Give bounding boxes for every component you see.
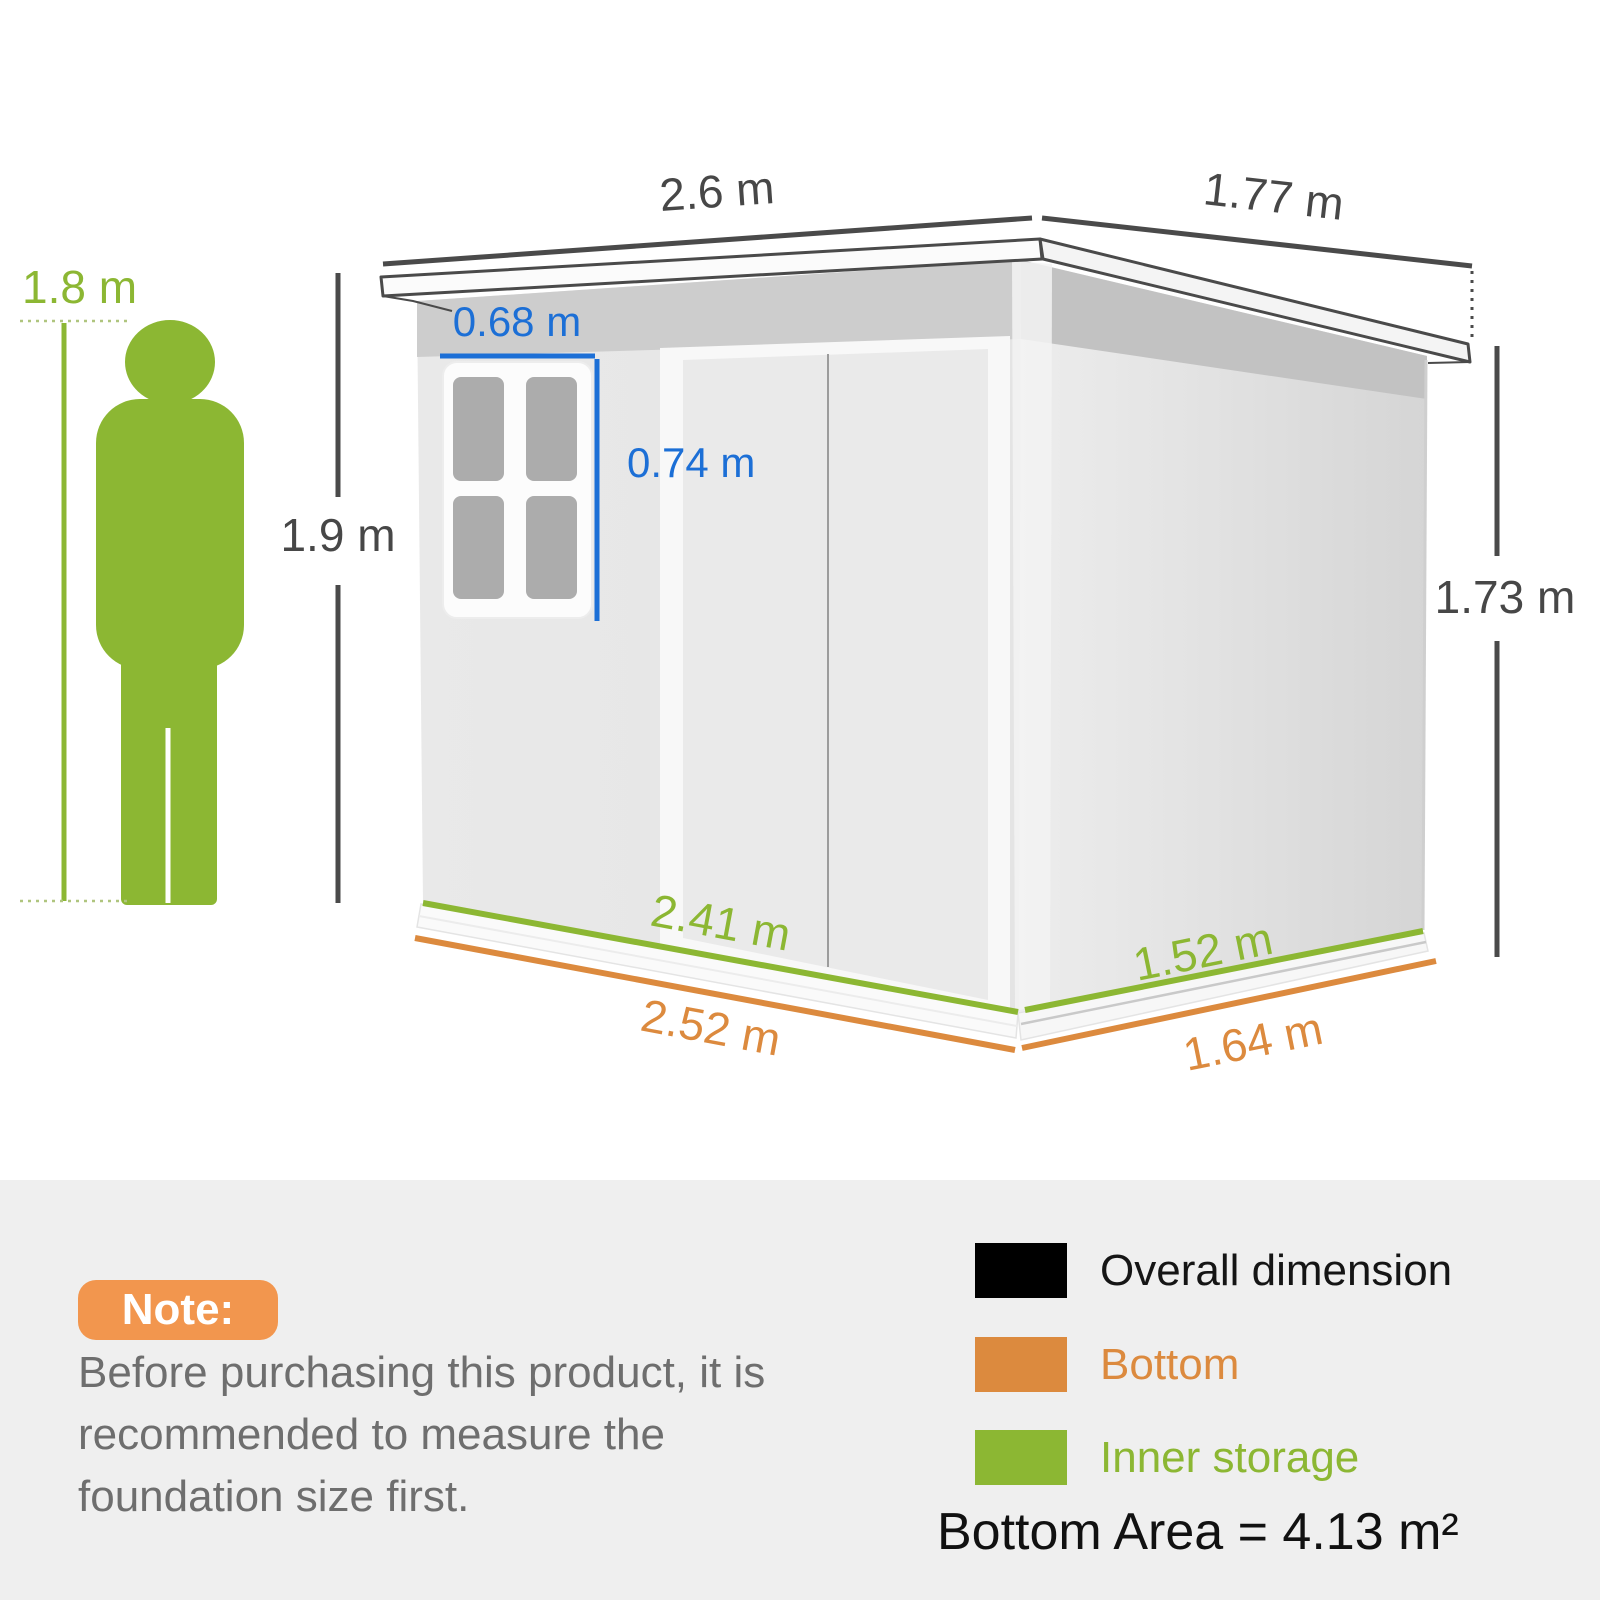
- roof-depth-label: 1.77 m: [1201, 162, 1347, 230]
- rear-height-dimension: 1.73 m: [1435, 346, 1576, 957]
- legend-label-overall: Overall dimension: [1100, 1243, 1452, 1298]
- window-pane: [526, 496, 577, 599]
- front-height-label: 1.9 m: [280, 509, 395, 561]
- person-silhouette: [96, 317, 244, 905]
- bottom-depth-label: 1.64 m: [1179, 1002, 1327, 1081]
- person-height-label: 1.8 m: [22, 261, 137, 313]
- legend-swatch-inner-storage: [975, 1430, 1067, 1485]
- window-pane: [453, 496, 504, 599]
- shed-corner-trim: [1012, 261, 1052, 1011]
- roof-width-label: 2.6 m: [658, 161, 776, 221]
- diagram-svg: 1.8 m 1.9 m: [0, 0, 1600, 1180]
- person-head: [122, 317, 218, 407]
- rear-height-label: 1.73 m: [1435, 571, 1576, 623]
- shed-illustration: [381, 239, 1470, 1040]
- legend-swatch-bottom: [975, 1337, 1067, 1392]
- window-pane: [453, 377, 504, 481]
- legend-label-inner-storage: Inner storage: [1100, 1430, 1359, 1485]
- window-width-label: 0.68 m: [453, 298, 581, 345]
- window-pane: [526, 377, 577, 481]
- note-panel: Note: Before purchasing this product, it…: [0, 1180, 1600, 1600]
- window-height-label: 0.74 m: [627, 439, 755, 486]
- legend: Overall dimension Bottom Inner storage B…: [0, 1180, 1600, 1600]
- front-height-dimension: 1.9 m: [280, 273, 395, 903]
- legend-label-bottom: Bottom: [1100, 1337, 1239, 1392]
- bottom-area-text: Bottom Area = 4.13 m²: [937, 1502, 1459, 1562]
- shed-dimension-figure: 1.8 m 1.9 m: [0, 0, 1600, 1600]
- window: [443, 362, 592, 618]
- roof-right-eave-edge: [1428, 362, 1470, 363]
- legend-swatch-overall: [975, 1243, 1067, 1298]
